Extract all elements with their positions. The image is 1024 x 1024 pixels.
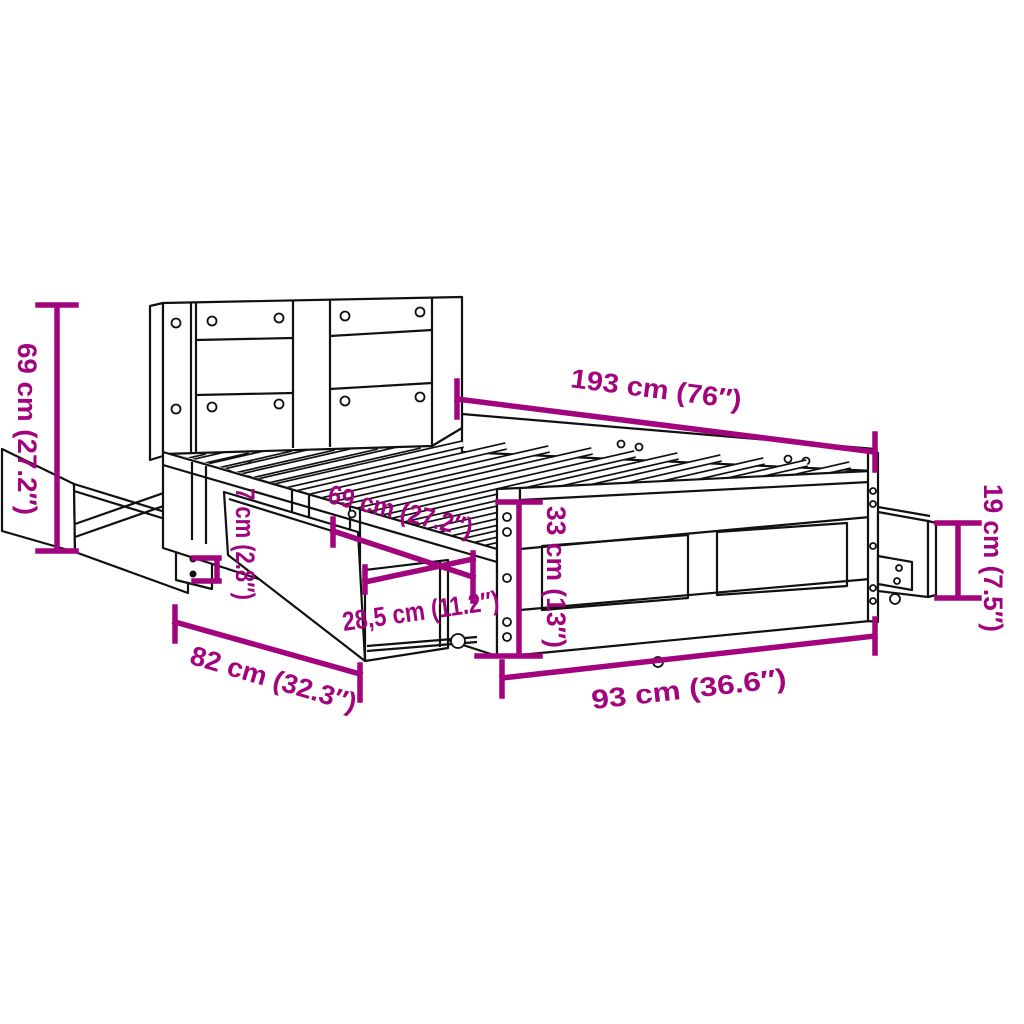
corner-post <box>868 452 878 622</box>
bed-frame-diagram-svg: 69 cm (27.2″) 193 cm (76″) 19 cm (7.5″) … <box>0 0 1024 1024</box>
dimension-frame-height-label: 33 cm (13″) <box>541 506 571 648</box>
dimension-bed-length-label: 193 cm (76″) <box>569 363 743 415</box>
screw-dot <box>190 571 197 578</box>
caster-wheel <box>890 594 900 604</box>
dimension-headboard-height-label: 69 cm (27.2″) <box>12 343 42 515</box>
dimension-side-drawer-height: 19 cm (7.5″) <box>937 484 1008 632</box>
foot-side-drawer <box>878 507 936 604</box>
dimension-under-frame-clearance-label: 7 cm (2.8″) <box>230 488 260 600</box>
dimension-side-drawer-height-label: 19 cm (7.5″) <box>978 484 1008 632</box>
dimension-diagram: 69 cm (27.2″) 193 cm (76″) 19 cm (7.5″) … <box>0 0 1024 1024</box>
drawer-slide-bracket <box>878 556 912 590</box>
caster-wheel <box>451 634 465 648</box>
headboard <box>150 297 462 460</box>
dimension-bed-width-label: 93 cm (36.6″) <box>590 663 788 715</box>
